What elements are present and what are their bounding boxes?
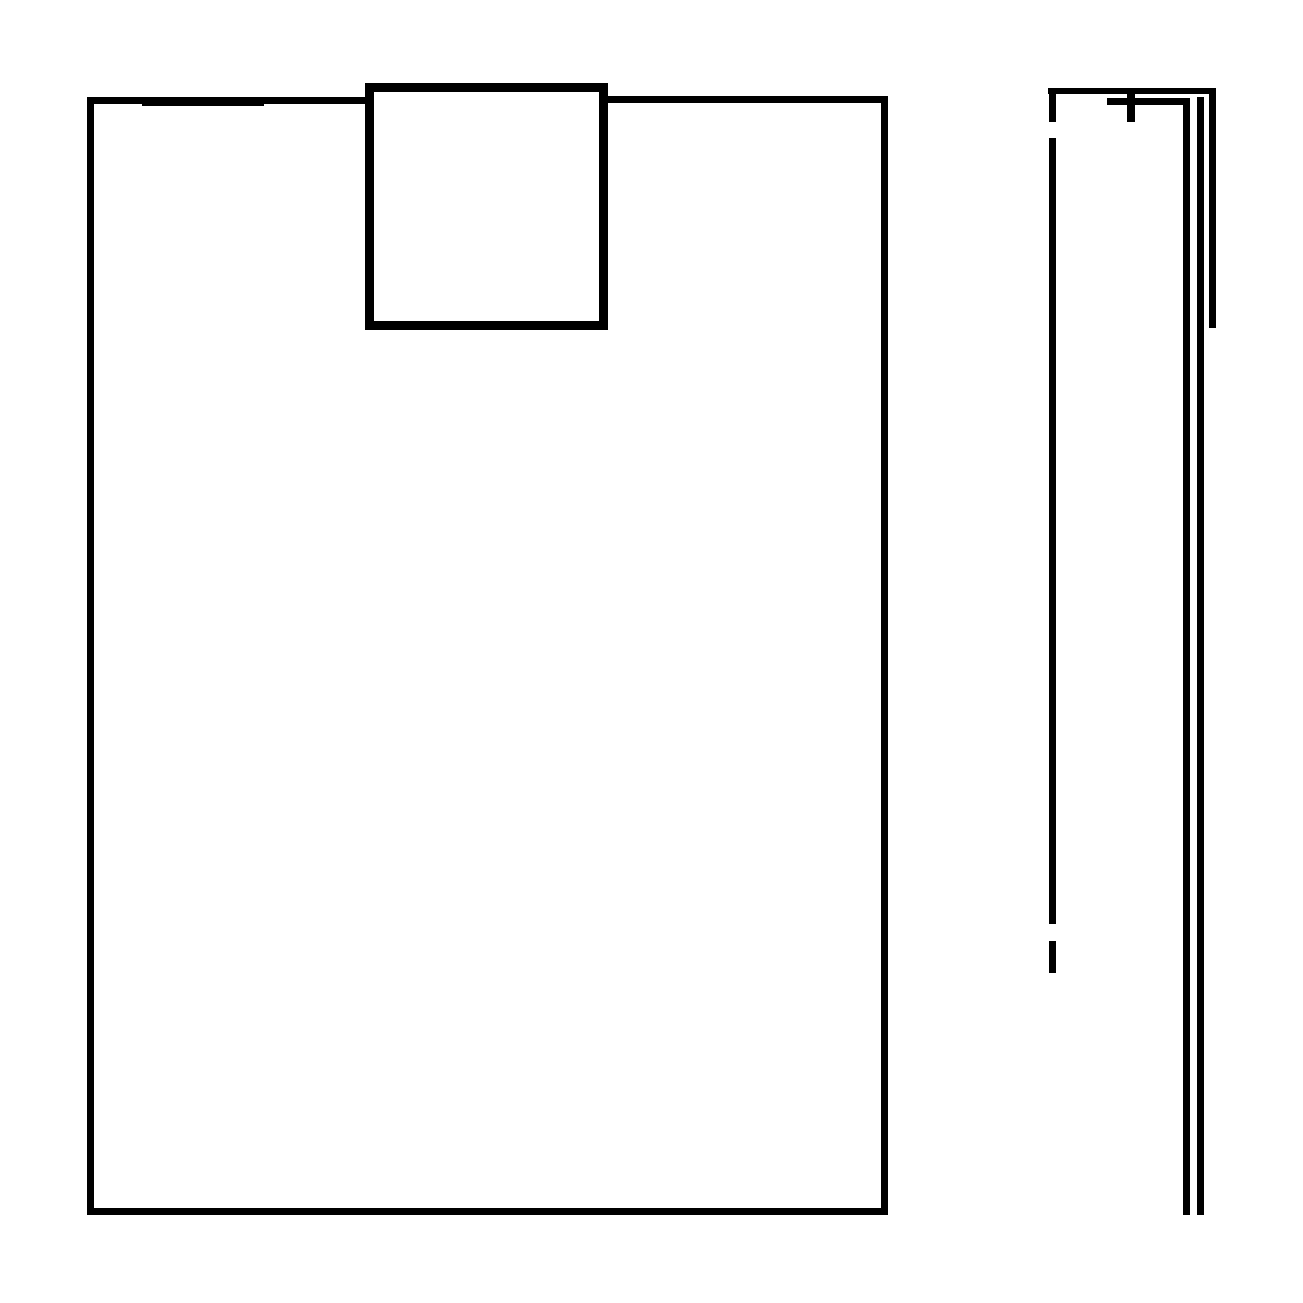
side-vertical-middle bbox=[1197, 97, 1204, 1215]
doc-bottom-edge bbox=[87, 1208, 888, 1215]
side-vertical-inner bbox=[1183, 98, 1190, 1215]
side-cross-tick bbox=[1127, 88, 1135, 122]
drawing-canvas bbox=[0, 0, 1303, 1303]
doc-left-edge bbox=[87, 97, 94, 1215]
doc-top-edge-right bbox=[604, 96, 888, 103]
side-dash-middle bbox=[1049, 138, 1056, 924]
doc-right-edge bbox=[881, 96, 888, 1215]
side-dash-bottom bbox=[1049, 941, 1056, 973]
side-vertical-outer bbox=[1209, 88, 1216, 328]
side-inner-bar bbox=[1107, 98, 1190, 105]
side-dash-top bbox=[1049, 88, 1056, 122]
doc-top-edge-left-stroke2 bbox=[142, 100, 264, 106]
notch-square bbox=[365, 83, 608, 330]
